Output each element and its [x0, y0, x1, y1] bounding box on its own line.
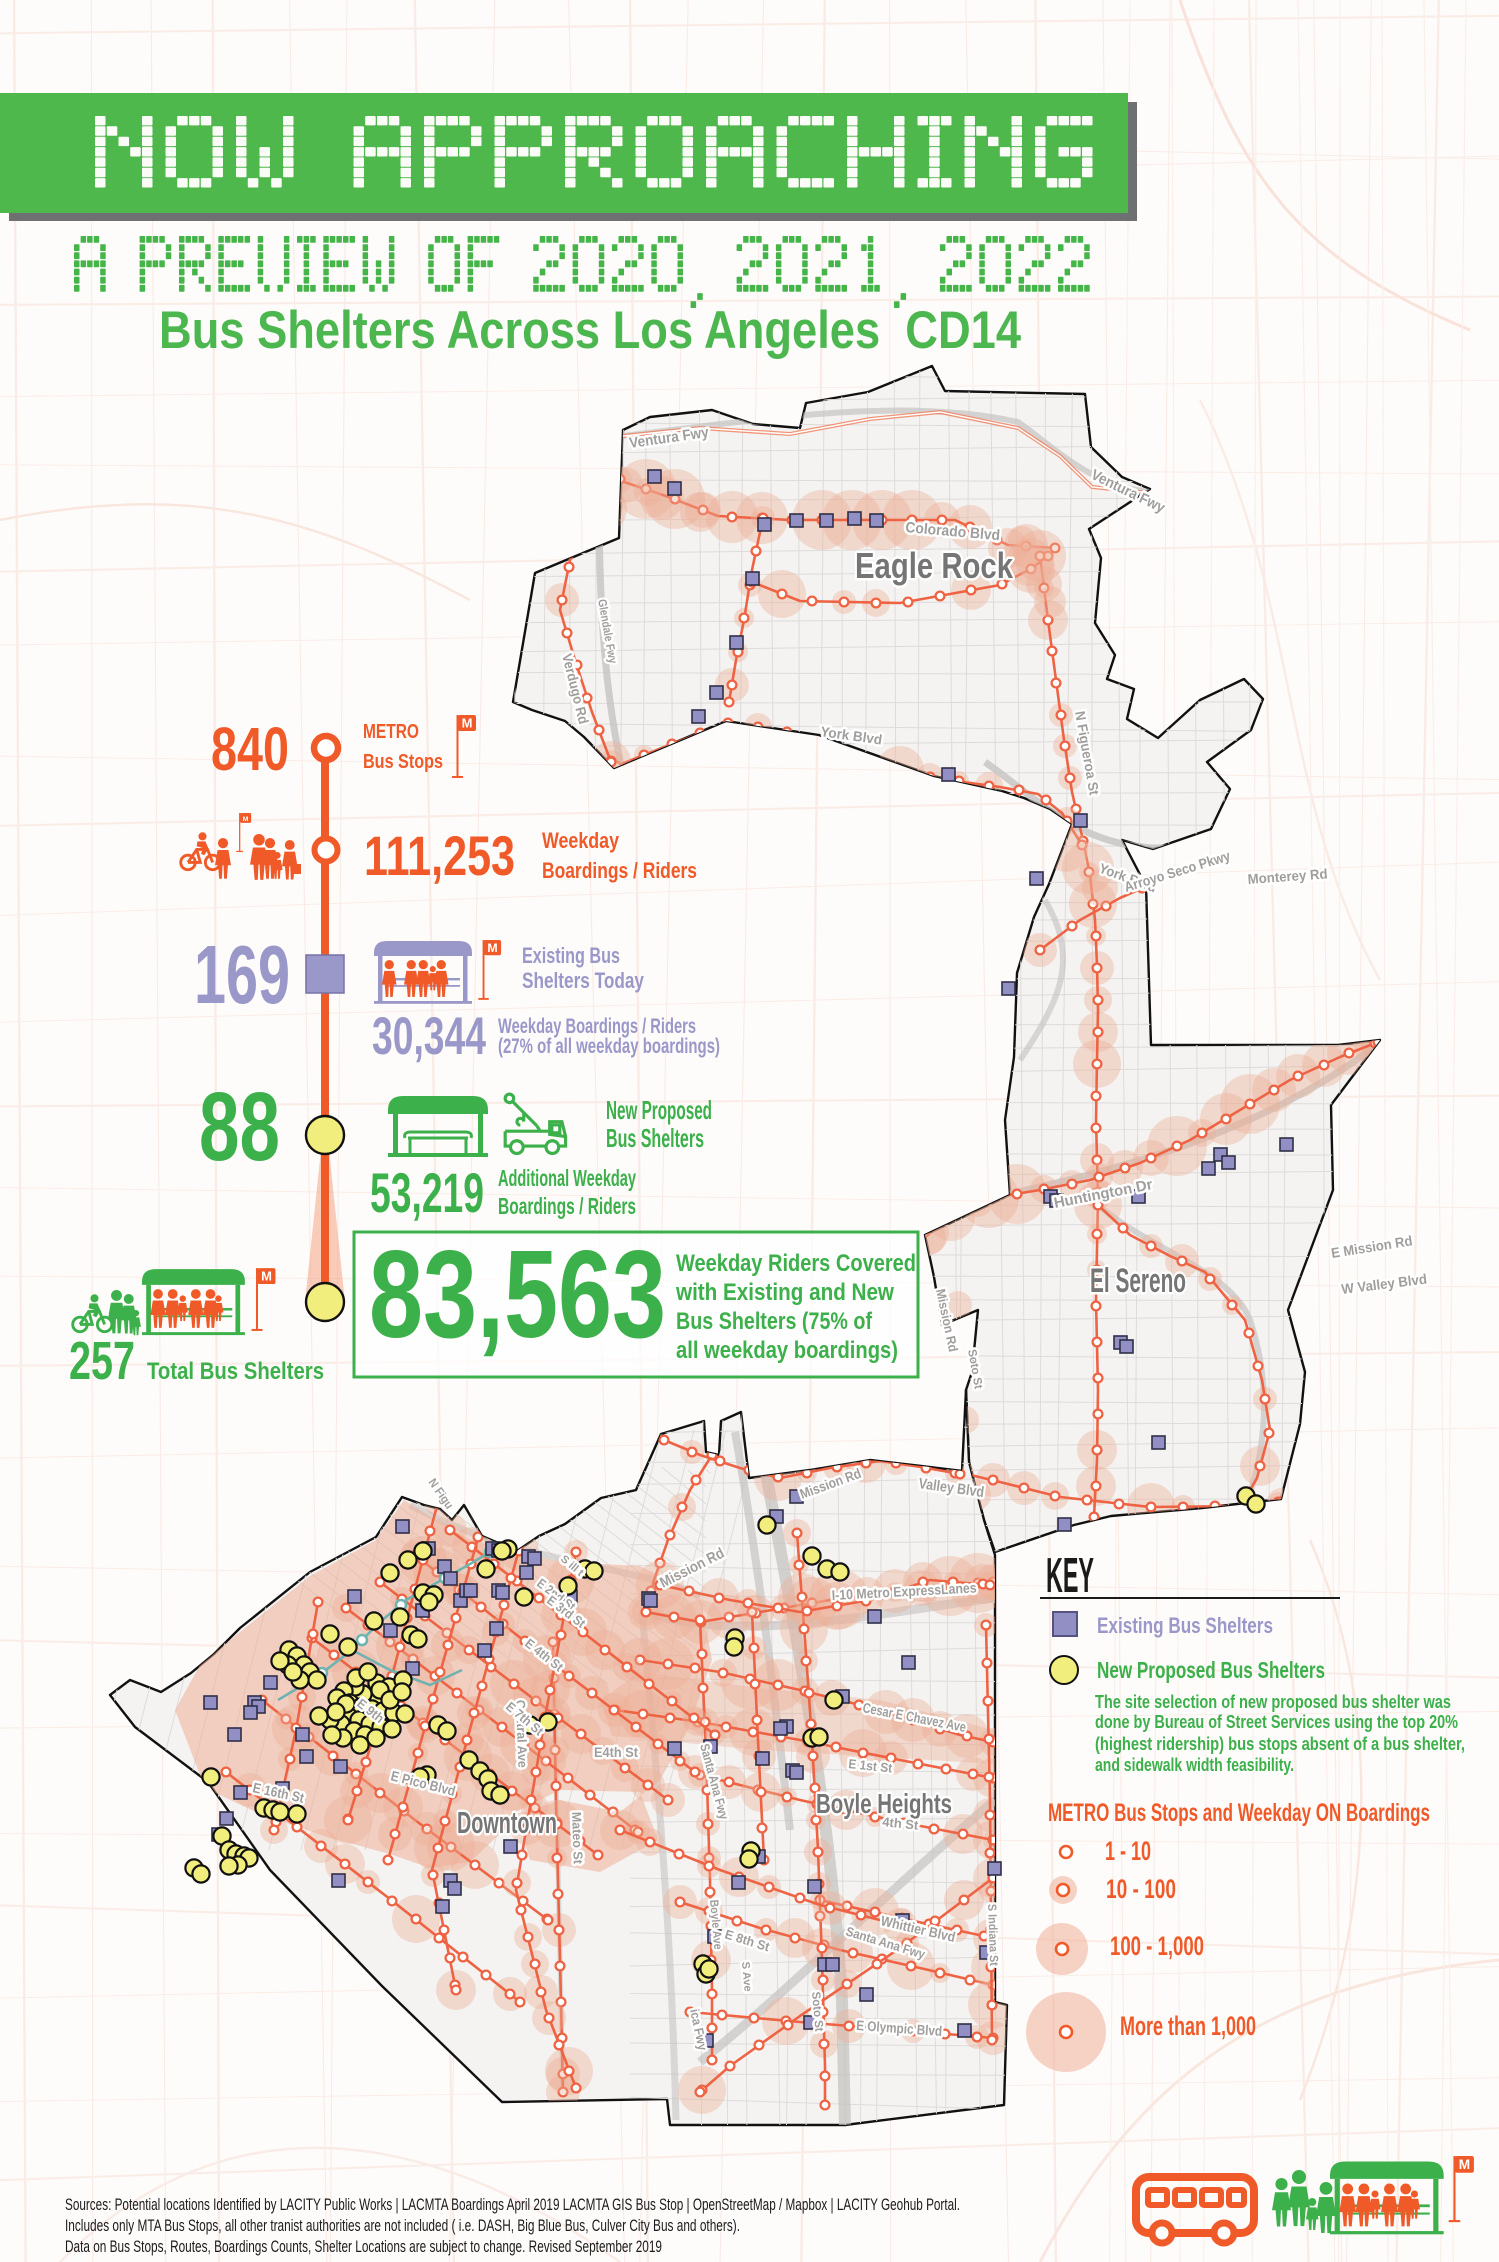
- svg-text:Weekday Riders Covered: Weekday Riders Covered: [676, 1250, 916, 1277]
- svg-text:Weekday: Weekday: [542, 828, 620, 853]
- svg-text:Additional Weekday: Additional Weekday: [498, 1165, 636, 1191]
- svg-text:Existing Bus: Existing Bus: [522, 943, 620, 968]
- svg-text:Bus Shelters Across Los Angele: Bus Shelters Across Los Angeles CD14: [159, 301, 1021, 360]
- svg-text:M: M: [261, 1269, 272, 1284]
- svg-text:83,563: 83,563: [369, 1226, 666, 1364]
- svg-text:M: M: [1459, 2157, 1470, 2172]
- svg-text:30,344: 30,344: [372, 1007, 486, 1066]
- svg-text:with Existing and New: with Existing and New: [675, 1279, 894, 1306]
- svg-text:METRO: METRO: [363, 721, 419, 743]
- svg-text:88: 88: [199, 1072, 280, 1181]
- svg-text:The site selection of new prop: The site selection of new proposed bus s…: [1095, 1692, 1451, 1712]
- svg-text:Shelters Today: Shelters Today: [522, 968, 645, 993]
- svg-text:Bus Shelters: Bus Shelters: [606, 1123, 704, 1153]
- svg-text:840: 840: [211, 715, 289, 783]
- svg-text:Bus Stops: Bus Stops: [363, 751, 443, 773]
- svg-text:KEY: KEY: [1046, 1549, 1094, 1603]
- svg-text:New Proposed: New Proposed: [606, 1095, 712, 1125]
- svg-text:Data on Bus Stops, Routes, Boa: Data on Bus Stops, Routes, Boardings Cou…: [65, 2237, 662, 2256]
- svg-text:Boardings / Riders: Boardings / Riders: [498, 1193, 636, 1219]
- svg-text:and sidewalk width feasibility: and sidewalk width feasibility.: [1095, 1755, 1294, 1775]
- svg-text:(highest ridership) bus stops: (highest ridership) bus stops absent of …: [1095, 1734, 1465, 1754]
- svg-text:Existing Bus Shelters: Existing Bus Shelters: [1097, 1613, 1273, 1638]
- svg-text:all weekday boardings): all weekday boardings): [676, 1337, 898, 1364]
- svg-text:Sources: Potential locations I: Sources: Potential locations Identified …: [65, 2195, 960, 2214]
- svg-text:257: 257: [69, 1331, 135, 1391]
- svg-text:Boardings / Riders: Boardings / Riders: [542, 858, 697, 883]
- svg-text:M: M: [487, 941, 497, 955]
- svg-text:111,253: 111,253: [364, 824, 515, 887]
- svg-text:10 - 100: 10 - 100: [1106, 1874, 1176, 1904]
- svg-text:M: M: [462, 716, 473, 731]
- svg-text:Total Bus Shelters: Total Bus Shelters: [147, 1358, 324, 1385]
- svg-text:169: 169: [194, 928, 290, 1021]
- svg-text:METRO Bus Stops and Weekday ON: METRO Bus Stops and Weekday ON Boardings: [1048, 1799, 1430, 1827]
- svg-text:53,219: 53,219: [370, 1161, 484, 1224]
- svg-text:(27% of all weekday boardings): (27% of all weekday boardings): [498, 1034, 720, 1058]
- svg-text:100 - 1,000: 100 - 1,000: [1110, 1931, 1204, 1961]
- svg-text:M: M: [243, 816, 249, 823]
- svg-text:Includes only MTA Bus Stops, a: Includes only MTA Bus Stops, all other t…: [65, 2216, 740, 2235]
- svg-text:Bus Shelters (75% of: Bus Shelters (75% of: [676, 1308, 873, 1335]
- svg-text:1 - 10: 1 - 10: [1105, 1836, 1151, 1866]
- svg-text:New Proposed Bus Shelters: New Proposed Bus Shelters: [1097, 1657, 1325, 1683]
- svg-text:done by Bureau of Street Servi: done by Bureau of Street Services using …: [1095, 1712, 1458, 1732]
- svg-text:More than 1,000: More than 1,000: [1120, 2011, 1256, 2041]
